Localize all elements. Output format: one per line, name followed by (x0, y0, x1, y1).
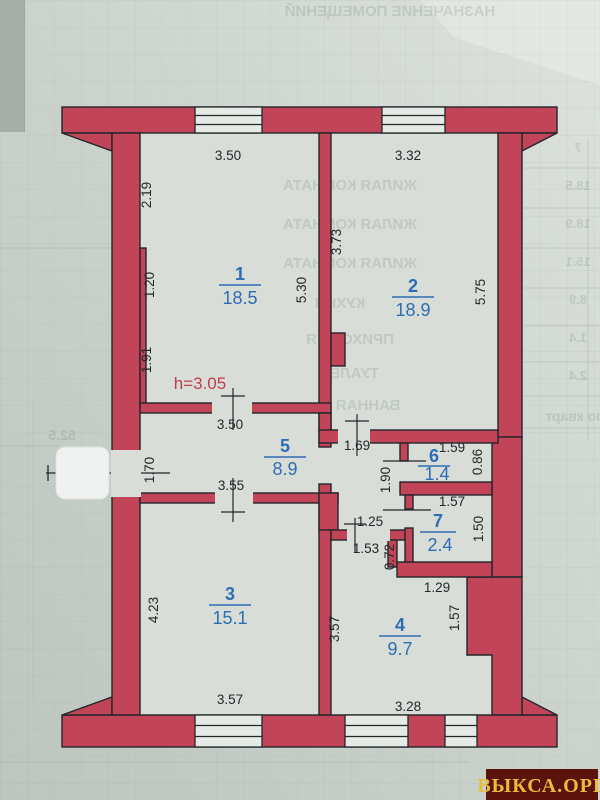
room-number: 5 (280, 436, 290, 456)
dim-r4-step: 1.29 (424, 580, 450, 595)
dim-r1-top: 3.50 (215, 148, 241, 163)
wall (397, 562, 492, 577)
ceiling-height-note: h=3.05 (174, 374, 226, 393)
room-area: 2.4 (427, 535, 452, 555)
room-number: 6 (429, 446, 439, 466)
ghost-total: 52.5 (48, 427, 75, 443)
window (345, 715, 408, 747)
room-area: 9.7 (387, 639, 412, 659)
door-opening (215, 492, 253, 504)
dim-r4-left: 3.57 (327, 616, 342, 642)
wall-notch (140, 248, 146, 403)
dim-corr-low: 1.25 (357, 514, 383, 529)
dim-r3-left: 4.23 (146, 597, 161, 623)
ghost-number: 2.4 (568, 368, 587, 383)
watermark-text: ВЫКСА.ОРГ (477, 775, 600, 797)
room-area: 18.5 (222, 288, 257, 308)
scanned-floor-plan-page: НАЗНАЧЕНИЕ ПОМЕЩЕНИЙ ЖИЛАЯ КОМНАТА ЖИЛАЯ… (0, 0, 600, 800)
wall (405, 495, 413, 509)
room-number: 3 (225, 584, 235, 604)
floor-plan-svg: НАЗНАЧЕНИЕ ПОМЕЩЕНИЙ ЖИЛАЯ КОМНАТА ЖИЛАЯ… (0, 0, 600, 800)
dim-r1-left-lower: 1.20 (142, 272, 157, 298)
wall (400, 443, 408, 461)
dim-r4-bottom: 3.28 (395, 699, 421, 714)
ghost-corner: по кварт (545, 408, 600, 424)
dim-r2-right: 5.75 (473, 279, 488, 305)
ghost-row: ЖИЛАЯ КОМНАТА (283, 216, 418, 233)
redaction-sticker (56, 447, 109, 499)
ghost-number: 7 (574, 140, 581, 155)
dim-hall-top: 3.50 (217, 417, 243, 432)
dim-corr-len: 1.90 (378, 467, 393, 493)
room-number: 4 (395, 615, 405, 635)
wall (498, 133, 522, 437)
room-area: 15.1 (212, 608, 247, 628)
ghost-row: ЖИЛАЯ КОМНАТА (283, 255, 418, 272)
entrance-opening (111, 450, 141, 497)
ghost-row: ВАННАЯ (336, 397, 400, 414)
dim-r7-right: 1.50 (471, 516, 486, 542)
dim-r6-top: 1.59 (439, 440, 465, 455)
ghost-number: 18.9 (565, 216, 590, 231)
ghost-number: 1.4 (568, 330, 587, 345)
ghost-row: ЖИЛАЯ КОМНАТА (283, 177, 418, 194)
dim-hall-bottom: 3.55 (218, 478, 244, 493)
dim-r4-right: 1.57 (447, 605, 462, 631)
room-number: 2 (408, 276, 418, 296)
window (445, 715, 477, 747)
room-area: 18.9 (395, 300, 430, 320)
dim-r1-right: 5.30 (294, 277, 309, 303)
room-area: 8.9 (272, 459, 297, 479)
wall (112, 133, 140, 715)
wall (405, 528, 413, 562)
dim-stub: 0.72 (382, 544, 397, 570)
door-opening (347, 529, 390, 541)
dim-r3-bottom: 3.57 (217, 692, 243, 707)
room-number: 1 (235, 264, 245, 284)
dim-r6-right: 0.86 (470, 449, 485, 475)
wall (492, 437, 522, 577)
wall (319, 493, 338, 530)
ghost-number: 18.5 (565, 178, 590, 193)
watermark-vyksa: ВЫКСА.ОРГ (477, 769, 600, 800)
room-number: 7 (433, 511, 443, 531)
ghost-number: 8.9 (569, 292, 587, 307)
dim-r1-left-upper: 2.19 (139, 182, 154, 208)
window (195, 107, 262, 133)
wall (319, 133, 331, 430)
dim-r2-top: 3.32 (395, 148, 421, 163)
wall (62, 107, 557, 133)
dim-corr-top: 1.69 (344, 438, 370, 453)
door-opening (212, 402, 252, 414)
building-interior (112, 107, 522, 747)
dim-r7-top: 1.57 (439, 494, 465, 509)
window (382, 107, 445, 133)
wall (62, 715, 557, 747)
dim-corr-door: 1.53 (353, 541, 379, 556)
dim-r2-left: 3.73 (329, 229, 344, 255)
ghost-number: 15.1 (565, 254, 590, 269)
wall-pier (331, 333, 345, 366)
window (195, 715, 262, 747)
dim-hall-left: 1.91 (139, 347, 154, 373)
ghost-title: НАЗНАЧЕНИЕ ПОМЕЩЕНИЙ (285, 2, 496, 20)
dim-entrance: 1.70 (142, 457, 157, 483)
room-area: 1.4 (424, 464, 449, 484)
